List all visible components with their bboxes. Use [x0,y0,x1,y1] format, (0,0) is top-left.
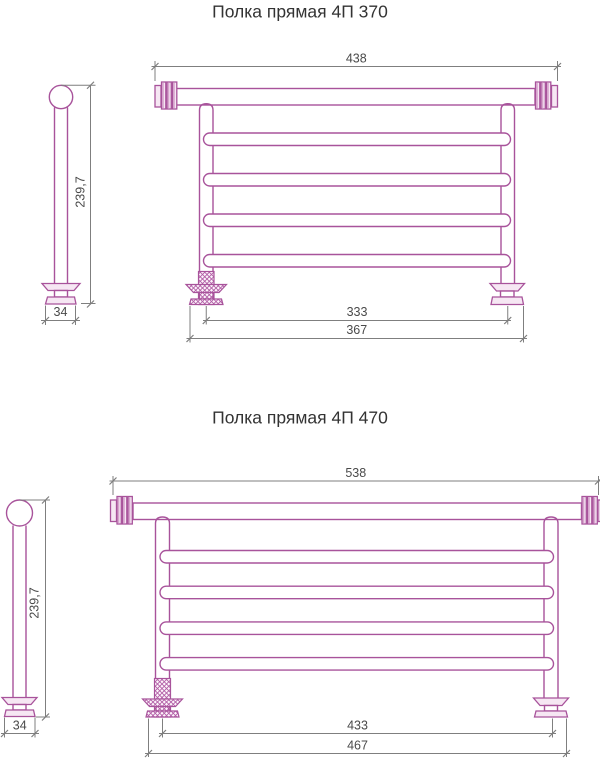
bracket-flange [490,284,525,292]
shelf-rail [160,586,554,599]
dimension-overall-width-value: 538 [345,466,366,480]
shelf-rails [204,133,511,267]
shelf-rails [160,551,554,671]
top-bar-cross-section [7,500,33,526]
flange-upper-disc [2,698,37,705]
top-bar-tube [177,89,536,106]
bracket-flange [143,699,183,707]
flange-neck [55,291,68,298]
shelf-rail [204,255,511,268]
pipe-union-left [155,82,177,109]
pipe-union-right [582,497,600,525]
union-end-cap [111,500,117,522]
flange-upper-disc [42,284,80,291]
post-profile [55,108,68,285]
wall-bracket-left-section [143,679,183,718]
shelf-rail [204,133,511,146]
bracket-flange [186,285,227,293]
bracket-neck [156,707,169,712]
shelf-rail [204,174,511,187]
drawing-title: Полка прямая 4П 370 [212,2,388,22]
bracket-base [190,299,224,305]
dimension-mount-span-value: 367 [346,323,367,337]
pipe-union-right [536,82,558,109]
bracket-base [535,711,568,717]
shelf-rail [204,214,511,227]
dimension-depth: 34 [1,718,39,738]
dimension-rail-span-value: 333 [347,305,368,319]
top-bar-cross-section [49,85,72,108]
shelf-rail [160,551,554,564]
drawing-4p-470: Полка прямая 4П 470 239,7 [1,408,600,758]
bracket-flange [534,698,569,706]
bracket-neck [200,293,214,300]
dimension-mount-span-value: 467 [347,739,368,753]
front-view: 438 333 367 [152,52,562,343]
dimension-overall-width-value: 438 [346,52,367,66]
dimension-depth-value: 34 [54,305,68,319]
dimension-overall-width: 438 [152,52,562,82]
dimension-depth-value: 34 [13,719,27,733]
dimension-height-value: 239,7 [28,587,42,618]
bracket-neck [545,706,558,712]
wall-bracket-right [534,698,569,717]
side-view: 239,7 34 [1,497,50,738]
bracket-base [491,297,524,305]
top-bar-tube [133,503,582,520]
dimension-depth: 34 [41,305,80,325]
dimension-height: 239,7 [20,497,51,721]
flange-base-disc [46,297,77,304]
flange-base-disc [5,710,36,717]
drawing-title: Полка прямая 4П 470 [212,408,388,428]
dimension-rail-span: 433 [159,719,556,738]
shelf-rail [160,658,554,671]
wall-bracket-left-section [186,272,227,305]
dimension-rail-span-value: 433 [347,719,368,733]
dimension-overall-width: 538 [110,466,600,495]
pipe-union-left [111,497,133,525]
dimension-height: 239,7 [61,82,96,308]
vertical-post-right [544,517,558,699]
post-profile [13,526,26,699]
technical-drawing-canvas: Полка прямая 4П 370 239,7 [0,0,600,758]
bracket-base [146,711,179,717]
vertical-post-left [156,517,170,699]
union-end-cap [552,86,558,108]
drawing-4p-370: Полка прямая 4П 370 239,7 [41,2,561,343]
front-view: 538 433 467 [110,466,600,757]
bracket-neck [501,291,515,297]
union-end-cap [155,86,161,108]
dimension-height-value: 239,7 [74,176,88,207]
flange-neck [13,705,26,711]
dimension-rail-span: 333 [203,305,512,325]
side-view: 239,7 34 [41,82,96,325]
wall-bracket-right [490,284,525,305]
shelf-rail [160,622,554,635]
